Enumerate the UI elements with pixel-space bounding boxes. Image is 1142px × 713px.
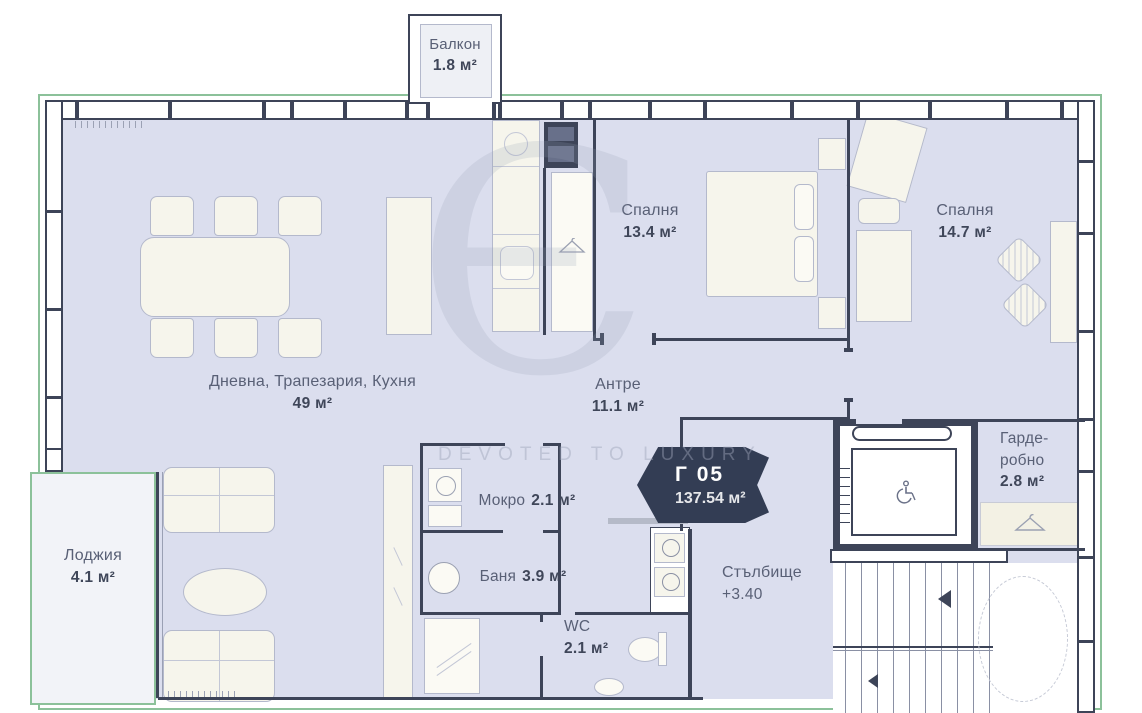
room-name: Гарде-робно: [1000, 430, 1048, 469]
room-label-staircase: Стълбище +3.40: [722, 562, 832, 606]
elevator-door: [852, 426, 952, 441]
wc-door-opening: [540, 622, 543, 656]
shower-icon: [424, 618, 480, 694]
shaft-ladder-icon: [837, 468, 850, 530]
room-name: Мокро: [478, 492, 525, 509]
stair-direction-arrow: [938, 590, 951, 608]
window-mullion: [75, 102, 79, 118]
wardrobe-closet: [980, 502, 1080, 546]
room-name: Антре: [595, 376, 641, 393]
bedroom1-door-opening: [604, 336, 652, 343]
unit-badge: Г 05 137.54 м²: [637, 447, 769, 523]
floor-plan: Балкон 1.8 м² Лоджия 4.1 м²: [0, 0, 1142, 713]
window-mullion: [47, 210, 61, 213]
dining-table: [140, 237, 290, 317]
elevator-cab: [851, 448, 957, 536]
stair-direction-arrow: [868, 674, 878, 688]
unit-area: 137.54 м²: [675, 490, 769, 508]
pillow: [794, 184, 814, 230]
wall-top: [45, 100, 1095, 120]
bedroom2-door-opening: [845, 352, 852, 398]
room-name: Лоджия: [64, 547, 122, 564]
room-name: Дневна, Трапезария, Кухня: [209, 373, 416, 390]
room-label-balcony: Балкон 1.8 м²: [412, 34, 498, 77]
wall-wet-right: [558, 443, 561, 615]
dining-chair: [214, 318, 258, 358]
window-mullion: [1079, 232, 1093, 235]
window-sill-hatch: [75, 121, 145, 128]
window-mullion: [262, 102, 266, 118]
balcony-door-opening: [430, 102, 492, 118]
window-mullion: [856, 102, 860, 118]
room-name: Стълбище: [722, 564, 802, 581]
wardrobe-door-opening: [856, 417, 902, 424]
window-mullion: [588, 102, 592, 118]
window-mullion: [405, 102, 409, 118]
stair-level: +3.40: [722, 584, 832, 606]
window-mullion: [1079, 470, 1093, 473]
room-name: Спалня: [621, 202, 678, 219]
hanger-icon: [1013, 514, 1047, 534]
room-area: 3.9 м²: [522, 568, 566, 585]
window-mullion: [168, 102, 172, 118]
loggia-window-wall-inner: [162, 472, 163, 698]
dining-chair: [150, 318, 194, 358]
room-label-loggia: Лоджия 4.1 м²: [38, 545, 148, 589]
desk: [1050, 221, 1077, 343]
unit-code: Г 05: [675, 463, 769, 487]
window-mullion: [1079, 160, 1093, 163]
room-label-bedroom1: Спалня 13.4 м²: [590, 200, 710, 244]
sofa: [163, 467, 275, 533]
wall-left: [45, 100, 63, 472]
room-name: Баня: [480, 568, 517, 585]
room-label-wc: WC 2.1 м²: [564, 616, 634, 659]
wheelchair-accessible-icon: [891, 479, 917, 505]
room-area: 1.8 м²: [412, 55, 498, 77]
washer-drum-icon: [662, 539, 680, 557]
bench: [856, 230, 912, 322]
wall-kitchen: [543, 168, 546, 335]
stair-landing-line2: [833, 650, 993, 651]
room-area: 11.1 м²: [558, 396, 678, 418]
room-area: 14.7 м²: [905, 222, 1025, 244]
window-mullion: [560, 102, 564, 118]
room-name: Спалня: [936, 202, 993, 219]
window-mullion: [1060, 102, 1064, 118]
window-mullion: [648, 102, 652, 118]
bathroom-door-opening: [503, 528, 543, 535]
stair-landing-line: [833, 646, 993, 648]
window-mullion: [1079, 640, 1093, 643]
kitchen-island: [386, 197, 432, 335]
room-area: 2.1 м²: [531, 492, 575, 509]
wall-wardrobe-left: [975, 419, 978, 551]
side-table: [858, 198, 900, 224]
sink-icon: [500, 246, 534, 280]
pillow: [794, 236, 814, 282]
room-name: Балкон: [429, 36, 481, 53]
wardrobe-cabinet: [383, 465, 413, 698]
window-mullion: [790, 102, 794, 118]
window-mullion: [1005, 102, 1009, 118]
window-mullion: [928, 102, 932, 118]
wall-wardrobe-bottom: [978, 548, 1085, 551]
dining-chair: [278, 318, 322, 358]
window-mullion: [290, 102, 294, 118]
oven-icon: [544, 122, 578, 168]
wall-hall-top: [680, 417, 850, 420]
window-mullion: [47, 308, 61, 311]
window-mullion: [1079, 556, 1093, 559]
room-label-hallway: Антре 11.1 м²: [558, 374, 678, 418]
wall-bath-bottom: [420, 612, 560, 615]
room-area: 13.4 м²: [590, 222, 710, 244]
wc-sink-icon: [594, 678, 624, 696]
window-mullion: [1079, 418, 1093, 421]
room-name: WC: [564, 618, 590, 635]
window-mullion: [703, 102, 707, 118]
dining-chair: [278, 196, 322, 236]
room-area: 2.1 м²: [564, 638, 634, 660]
nightstand: [818, 138, 846, 170]
window-mullion: [343, 102, 347, 118]
room-label-wet-room: Мокро2.1 м²: [452, 490, 602, 512]
cooktop-icon: [504, 132, 528, 156]
room-label-bedroom2: Спалня 14.7 м²: [905, 200, 1025, 244]
window-mullion: [1079, 330, 1093, 333]
wall-bottom: [158, 697, 703, 700]
wall-wet-left: [420, 443, 423, 615]
room-label-wardrobe: Гарде-робно 2.8 м²: [1000, 428, 1066, 493]
coffee-table: [183, 568, 267, 616]
wall-right: [1077, 100, 1095, 713]
room-label-bathroom: Баня3.9 м²: [448, 566, 598, 588]
wet-room-door-opening: [505, 441, 543, 448]
wall-elevator-bottom: [830, 549, 1008, 563]
nightstand: [818, 297, 846, 329]
room-area: 49 м²: [165, 393, 460, 415]
room-area: 2.8 м²: [1000, 471, 1066, 493]
wall-left-end: [45, 448, 63, 472]
room-label-living: Дневна, Трапезария, Кухня 49 м²: [165, 371, 460, 415]
dryer-drum-icon: [662, 573, 680, 591]
toilet-tank-icon: [658, 632, 667, 666]
window-mullion: [47, 396, 61, 399]
wall-wc-top: [575, 612, 690, 615]
loggia-window-wall: [156, 472, 159, 698]
window-mullion: [498, 102, 502, 118]
hanger-icon: [558, 238, 586, 256]
stair-walk-path: [978, 576, 1068, 702]
dining-chair: [150, 196, 194, 236]
room-area: 4.1 м²: [38, 567, 148, 589]
dining-chair: [214, 196, 258, 236]
